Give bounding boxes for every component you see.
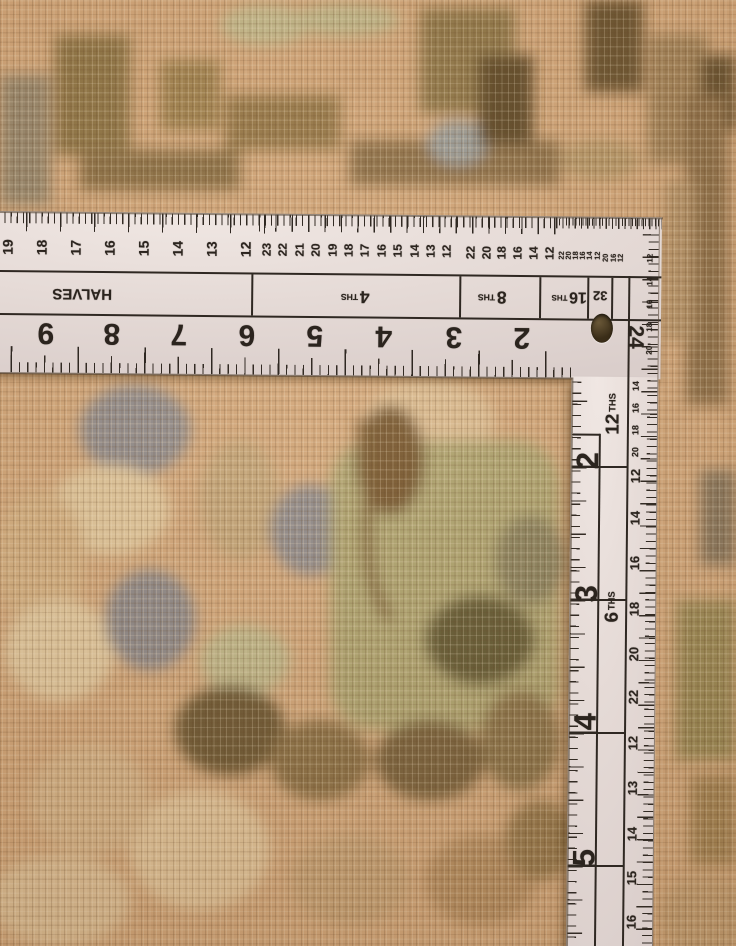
blade-top-scale-number: 20: [310, 243, 322, 256]
tongue-inch-number: 3: [571, 585, 602, 603]
tongue-inch-number: 4: [570, 713, 601, 731]
tongue-inch-number: 5: [568, 849, 599, 867]
blade-top-scale-number: 18: [343, 244, 355, 257]
blade-top-scale-number: 22: [465, 246, 477, 259]
tongue-edge-number: 14: [632, 381, 641, 391]
blade-top-scale-number: 15: [137, 241, 151, 257]
blade-corner-side-number: 14: [646, 277, 654, 286]
blade-inch-number: 3: [445, 321, 462, 351]
blade-top-scale-number: 15: [392, 244, 404, 257]
blade-top-scale-number: 13: [205, 241, 219, 257]
blade-top-scale-number: 20: [480, 246, 492, 259]
framing-square: 1918171615141312232221201918171615141312…: [0, 0, 736, 946]
blade-top-scale-number: 12: [617, 254, 625, 262]
tongue-edge-number: 16: [625, 915, 638, 930]
blade-corner-side-number: 20: [646, 346, 654, 355]
blade-top-scale-number: 12: [441, 245, 453, 258]
blade-band-label: HALVES: [52, 286, 112, 302]
blade-corner-side-number: 16: [646, 300, 654, 309]
tongue-edge-number: 20: [631, 447, 640, 457]
blade-top-scale-number: 19: [326, 243, 338, 256]
blade-top-scale-number: 14: [408, 244, 420, 257]
blade-top-scale-number: 19: [1, 239, 15, 255]
blade-corner-side-number: 12: [647, 254, 655, 263]
tongue-edge-number: 15: [625, 871, 638, 886]
blade-top-scale-number: 16: [512, 246, 524, 259]
blade-top-scale-number: 14: [527, 246, 539, 259]
blade-top-scale-number: 16: [375, 244, 387, 257]
blade-top-scale-number: 17: [359, 244, 371, 257]
tongue-edge-number: 12: [629, 469, 642, 484]
blade-band-label: 16 THS: [552, 288, 587, 304]
tongue-edge-number: 14: [625, 827, 638, 842]
blade-top-scale-number: 18: [35, 240, 49, 256]
tongue-edge-number: 20: [627, 647, 640, 662]
blade-inch-number: 7: [170, 319, 187, 349]
blade-corner-side-number: 18: [646, 323, 654, 332]
tongue-edge-number: 16: [632, 403, 641, 413]
rug-photo: 1918171615141312232221201918171615141312…: [0, 0, 736, 946]
blade-band-label: 4 THS: [341, 288, 370, 306]
blade-top-scale-number: 21: [293, 243, 305, 256]
tongue-band-label: 12 THS: [603, 393, 622, 435]
blade-top-scale-number: 14: [171, 241, 185, 257]
tongue-edge-number: 18: [628, 602, 641, 617]
tongue-edge-number: 22: [627, 690, 640, 705]
blade-band-label: 8 THS: [478, 288, 507, 306]
ruler-markings: 1918171615141312232221201918171615141312…: [0, 0, 736, 946]
blade-inch-number: 6: [238, 319, 255, 349]
blade-band-label: 32: [593, 289, 608, 302]
blade-inch-number: 8: [103, 318, 120, 348]
blade-inch-number: 4: [375, 321, 392, 351]
blade-inch-number: 9: [37, 317, 54, 347]
blade-inch-number: 2: [513, 322, 530, 352]
tongue-edge-number: 14: [629, 511, 642, 526]
blade-top-scale-number: 16: [103, 240, 117, 256]
blade-top-scale-number: 22: [277, 243, 289, 256]
blade-top-scale-number: 12: [543, 247, 555, 260]
tongue-inch-number: 2: [572, 452, 603, 470]
blade-top-scale-number: 17: [69, 240, 83, 256]
blade-inch-number: 5: [306, 320, 323, 350]
tongue-edge-number: 13: [626, 781, 639, 796]
blade-top-scale-number: 12: [239, 242, 253, 258]
tongue-band-label: 6 THS: [603, 591, 622, 622]
blade-top-scale-number: 18: [496, 246, 508, 259]
blade-top-scale-number: 12: [593, 252, 601, 260]
tongue-edge-number: 18: [631, 425, 640, 435]
blade-top-scale-number: 13: [425, 244, 437, 257]
tongue-edge-number: 16: [628, 556, 641, 571]
blade-top-scale-number: 23: [261, 243, 273, 256]
blade-corner-number: 24: [625, 325, 646, 349]
tongue-edge-number: 12: [626, 736, 639, 751]
